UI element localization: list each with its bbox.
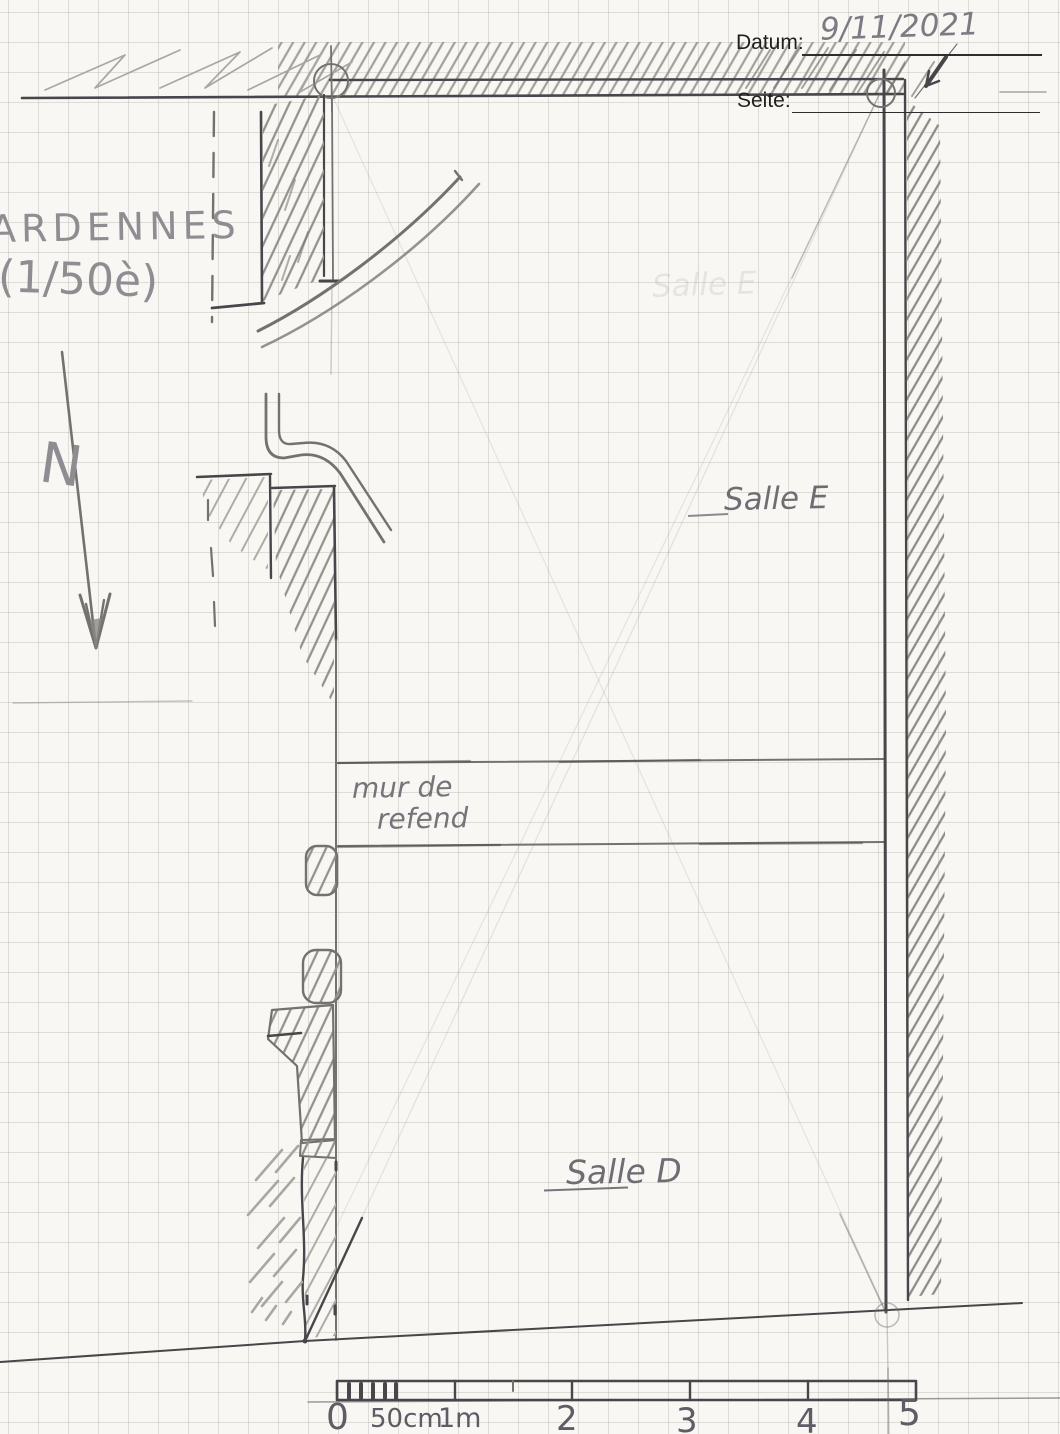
north-arrow-icon [62, 352, 110, 650]
north-label: N [36, 435, 85, 496]
right-wall [884, 70, 946, 1312]
middle-left-wall [197, 474, 336, 705]
scale-note-label: (1/50è) [0, 255, 159, 305]
scale-tick-1m: 1m [438, 1405, 481, 1432]
scale-tick-4: 4 [796, 1405, 818, 1434]
scale-tick-50cm: 50cm [370, 1406, 443, 1432]
page-label: Seite: [737, 90, 791, 111]
lower-left-wall [248, 640, 341, 1340]
room-e-ghost-label: Salle E [651, 268, 756, 303]
date-value: 9/11/2021 [820, 9, 980, 46]
scale-tick-3: 3 [676, 1404, 698, 1434]
partition-label-line2: refend [377, 804, 469, 834]
site-name-label: ARDENNES [0, 206, 241, 248]
page-underline [792, 112, 1040, 113]
date-underline [802, 54, 1042, 56]
partition-label-line1: mur de [352, 773, 453, 803]
room-d-label: Salle D [566, 1154, 682, 1189]
scale-tick-5: 5 [898, 1396, 921, 1432]
scanned-sketch-page: Datum: 9/11/2021 Seite: ARDENNES (1/50è)… [0, 0, 1060, 1434]
scale-tick-0: 0 [326, 1400, 349, 1434]
room-e-label: Salle E [724, 483, 829, 516]
construction-line-left [13, 701, 192, 703]
scale-tick-2: 2 [556, 1402, 578, 1434]
date-label: Datum: [736, 32, 804, 53]
